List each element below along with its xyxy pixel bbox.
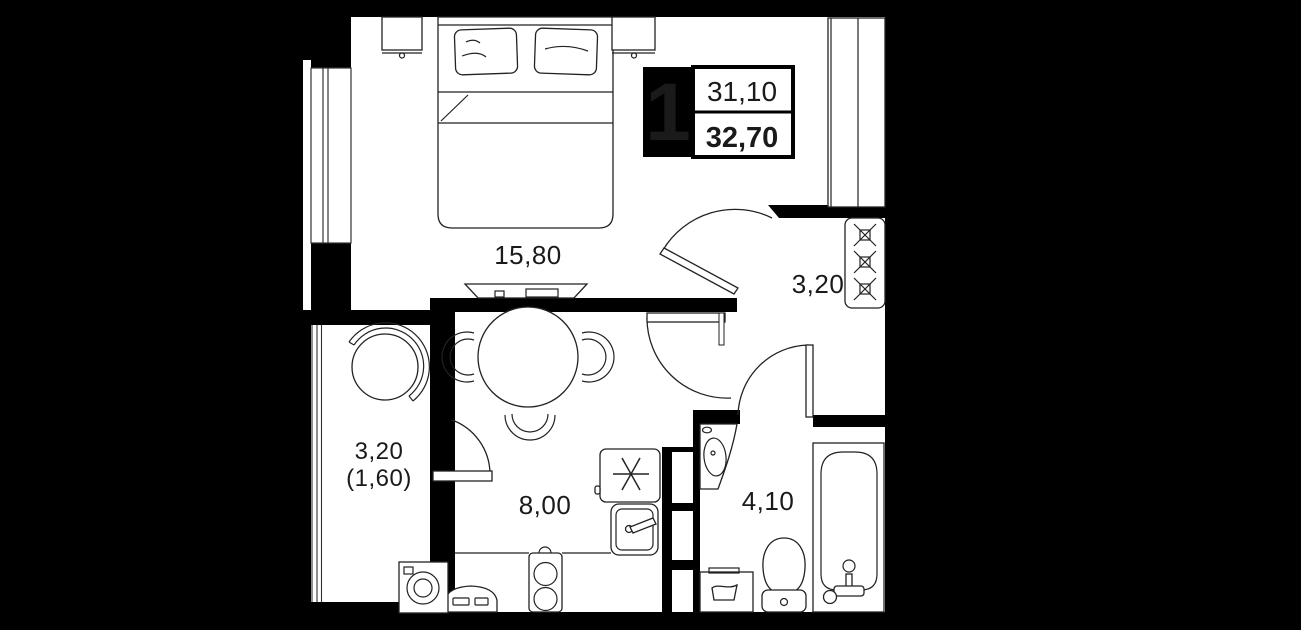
bedroom-area-label: 15,80 — [494, 240, 562, 270]
wall-bathroom-top — [813, 415, 885, 427]
dining-table — [478, 307, 578, 407]
wardrobe — [828, 18, 885, 207]
balcony-area-label: 3,20 — [355, 438, 404, 465]
door-jamb — [719, 313, 724, 345]
toilet — [762, 538, 806, 612]
hall-closet — [845, 218, 885, 308]
area-total: 32,70 — [706, 122, 779, 154]
mop-basin — [700, 568, 753, 612]
pillow — [454, 28, 518, 75]
vent-cell — [672, 570, 693, 612]
washing-machine — [399, 562, 448, 613]
wall-left-top — [311, 17, 351, 68]
wall-lobby — [693, 410, 740, 424]
balcony-reduced-area-label: (1,60) — [346, 465, 412, 492]
area-living: 31,10 — [707, 76, 777, 107]
cooktop-hob — [595, 449, 660, 502]
bathtub — [813, 443, 884, 612]
vent-cell — [672, 452, 693, 503]
kitchen-area-label: 8,00 — [519, 490, 572, 520]
wall-balcony-kitchen-upper — [430, 325, 455, 418]
door-leaf — [433, 471, 492, 481]
wall-bedroom-bottom — [430, 298, 737, 312]
wall-left-bottom — [311, 243, 351, 310]
info-box: 1 31,10 32,70 — [643, 67, 793, 158]
outer-sill — [303, 60, 311, 310]
bread-bin — [445, 586, 497, 612]
door-leaf — [806, 345, 813, 417]
tv-stand — [465, 284, 587, 298]
bathroom-area-label: 4,10 — [742, 486, 795, 516]
stove-two-burner — [529, 547, 562, 612]
bedroom-floor-edge — [351, 296, 430, 310]
hallway-area-label: 3,20 — [792, 269, 845, 299]
vent-cell — [672, 511, 693, 560]
floor-plan-canvas: 1 31,10 32,70 15,80 3,20 8,00 4,10 3,20 … — [0, 0, 1301, 630]
door-leaf — [647, 313, 725, 322]
bedroom-window — [311, 68, 351, 243]
pillow — [534, 28, 598, 75]
vent-shaft — [672, 452, 693, 612]
wall-bathroom-left — [693, 424, 700, 447]
floor-plan: 1 31,10 32,70 15,80 3,20 8,00 4,10 3,20 … — [0, 0, 1301, 630]
room-count: 1 — [645, 67, 691, 158]
kitchen-sink — [611, 504, 658, 555]
balcony-glazing — [311, 325, 322, 602]
